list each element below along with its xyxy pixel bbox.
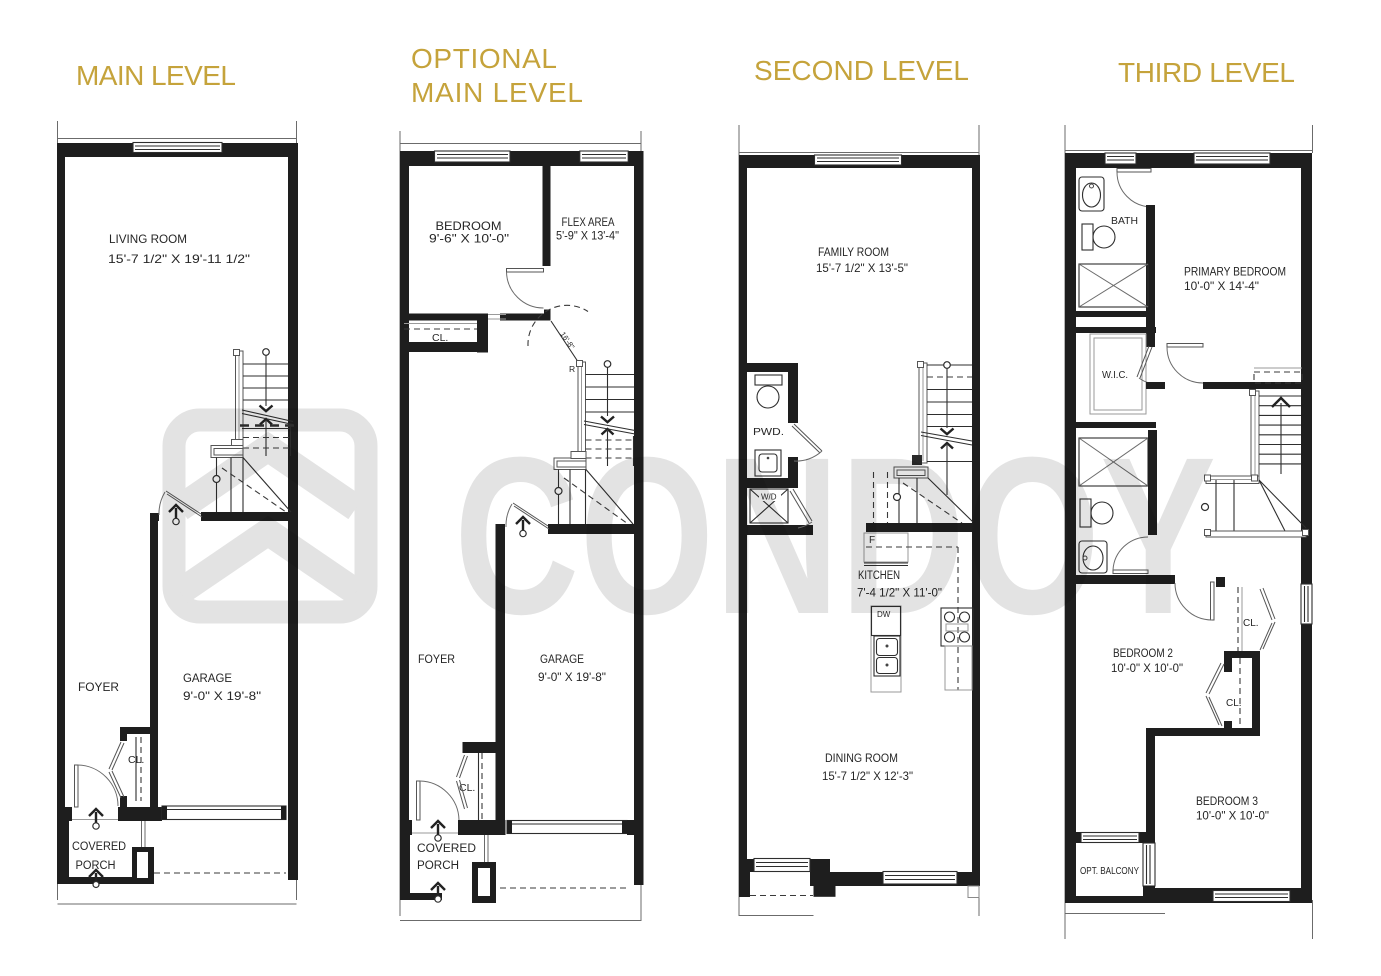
svg-text:15'-7 1/2" X 19'-11 1/2": 15'-7 1/2" X 19'-11 1/2" (108, 252, 250, 266)
svg-text:R: R (569, 364, 575, 374)
svg-text:OPT. BALCONY: OPT. BALCONY (1080, 865, 1139, 877)
svg-text:PORCH: PORCH (417, 860, 459, 872)
svg-text:10'-0" X 14'-4": 10'-0" X 14'-4" (1184, 279, 1259, 293)
svg-text:5'-9" X 13'-4": 5'-9" X 13'-4" (556, 229, 619, 243)
svg-text:9'-6" X 10'-0": 9'-6" X 10'-0" (429, 232, 509, 246)
svg-text:MAIN LEVEL: MAIN LEVEL (76, 60, 236, 91)
svg-text:BATH: BATH (1111, 215, 1138, 227)
svg-text:10'-0" X 10'-0": 10'-0" X 10'-0" (1196, 809, 1269, 823)
svg-text:15'-7 1/2" X 12'-3": 15'-7 1/2" X 12'-3" (822, 769, 913, 783)
svg-text:COVERED: COVERED (417, 843, 476, 855)
svg-text:LIVING ROOM: LIVING ROOM (109, 234, 187, 246)
svg-text:CL.: CL. (128, 754, 144, 766)
svg-text:BEDROOM 3: BEDROOM 3 (1196, 796, 1258, 808)
svg-text:9'-0" X 19'-8": 9'-0" X 19'-8" (538, 670, 606, 684)
svg-text:FOYER: FOYER (78, 682, 119, 694)
svg-text:FAMILY ROOM: FAMILY ROOM (818, 247, 889, 259)
svg-text:OPTIONAL: OPTIONAL (411, 43, 557, 74)
svg-text:SECOND LEVEL: SECOND LEVEL (754, 55, 969, 86)
svg-text:10'-0" X 10'-0": 10'-0" X 10'-0" (1111, 661, 1183, 675)
svg-text:THIRD LEVEL: THIRD LEVEL (1118, 57, 1295, 88)
svg-text:CONDOY: CONDOY (454, 411, 1216, 661)
svg-text:COVERED: COVERED (72, 841, 126, 853)
svg-text:9'-0" X 19'-8": 9'-0" X 19'-8" (183, 689, 261, 703)
svg-text:DINING ROOM: DINING ROOM (825, 753, 898, 765)
svg-text:CL.: CL. (1243, 618, 1259, 629)
svg-text:CL.: CL. (1226, 698, 1242, 709)
svg-text:W.I.C.: W.I.C. (1102, 369, 1128, 381)
svg-text:FLEX AREA: FLEX AREA (562, 217, 615, 229)
svg-text:FOYER: FOYER (418, 654, 455, 666)
svg-text:MAIN LEVEL: MAIN LEVEL (411, 77, 583, 108)
svg-text:PRIMARY BEDROOM: PRIMARY BEDROOM (1184, 267, 1286, 279)
svg-text:15'-7 1/2" X 13'-5": 15'-7 1/2" X 13'-5" (816, 261, 908, 275)
svg-text:GARAGE: GARAGE (183, 673, 232, 685)
